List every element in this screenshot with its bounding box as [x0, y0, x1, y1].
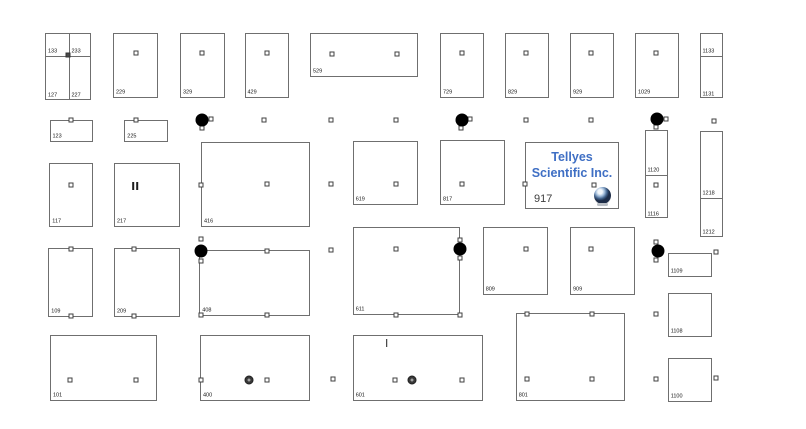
booth-number: 209	[117, 309, 126, 315]
booth-611[interactable]: 611	[353, 227, 461, 315]
utility-outlet-marker	[264, 312, 269, 317]
utility-outlet-marker	[208, 117, 213, 122]
utility-outlet-marker	[68, 378, 73, 383]
utility-outlet-marker	[394, 52, 399, 57]
booth-109[interactable]: 109	[48, 248, 93, 316]
exhibitor-globe-logo-icon	[594, 187, 611, 204]
booth-number: 1133	[703, 49, 715, 55]
structural-column-marker	[454, 243, 467, 256]
wall-tick-mark	[136, 182, 138, 190]
booth-number: 729	[443, 91, 452, 97]
booth-number: 619	[356, 198, 365, 204]
booth-number: 117	[52, 220, 61, 226]
utility-outlet-marker	[394, 312, 399, 317]
utility-outlet-marker	[199, 237, 204, 242]
booth-number: 1116	[648, 212, 659, 218]
booth-number: 217	[117, 220, 126, 226]
utility-outlet-marker	[264, 248, 269, 253]
utility-outlet-marker	[199, 378, 204, 383]
booth-divider	[646, 175, 667, 176]
booth-1100[interactable]: 1100	[668, 358, 712, 401]
booth-1109[interactable]: 1109	[668, 253, 712, 276]
booth-209[interactable]: 209	[114, 248, 180, 316]
utility-outlet-marker	[133, 378, 138, 383]
wall-tick-mark	[386, 339, 388, 347]
booth-225[interactable]: 225	[124, 120, 168, 142]
utility-outlet-marker	[459, 126, 464, 131]
utility-outlet-marker	[654, 377, 659, 382]
utility-outlet-marker	[394, 182, 399, 187]
utility-outlet-marker	[712, 118, 717, 123]
structural-column-marker	[196, 114, 209, 127]
utility-outlet-marker	[69, 183, 74, 188]
structural-column-marker	[195, 244, 208, 257]
utility-outlet-marker	[524, 377, 529, 382]
booth-1108[interactable]: 1108	[668, 293, 712, 337]
booth-408[interactable]: 408	[199, 250, 310, 316]
utility-outlet-marker	[134, 117, 139, 122]
booth-101[interactable]: 101	[50, 335, 157, 401]
utility-outlet-marker	[524, 312, 529, 317]
utility-outlet-marker	[588, 247, 593, 252]
booth-1218-1212[interactable]: 12181212	[700, 131, 723, 237]
booth-number: 1100	[671, 394, 683, 400]
booth-number: 233	[72, 50, 81, 56]
utility-outlet-marker	[654, 183, 659, 188]
utility-outlet-marker	[264, 182, 269, 187]
booth-divider	[701, 56, 722, 57]
utility-outlet-marker	[460, 182, 465, 187]
utility-outlet-marker	[330, 377, 335, 382]
utility-outlet-marker	[329, 118, 334, 123]
booth-416[interactable]: 416	[201, 142, 310, 227]
utility-outlet-marker	[393, 378, 398, 383]
booth-number: 1218	[703, 191, 715, 197]
booth-number: 909	[573, 287, 582, 293]
booth-number: 1108	[671, 329, 683, 335]
booth-817[interactable]: 817	[440, 140, 505, 205]
booth-number: 601	[356, 393, 365, 399]
utility-outlet-marker	[264, 51, 269, 56]
booth-number: 1212	[703, 231, 715, 237]
booth-619[interactable]: 619	[353, 141, 419, 205]
structural-column-marker	[650, 113, 663, 126]
booth-909[interactable]: 909	[570, 227, 635, 295]
booth-divider	[701, 198, 722, 199]
booth-number: 416	[204, 219, 213, 225]
booth-number: 1131	[703, 92, 715, 98]
utility-outlet-marker	[264, 378, 269, 383]
booth-number: 529	[313, 70, 322, 76]
booth-number: 133	[48, 50, 57, 56]
booth-601[interactable]: 601	[353, 335, 483, 401]
booth-133-233-127-227[interactable]: 133233127227	[45, 33, 91, 100]
utility-outlet-marker	[654, 258, 659, 263]
booth-400[interactable]: 400	[200, 335, 310, 401]
floor-port-icon	[408, 376, 417, 385]
utility-outlet-marker	[714, 376, 719, 381]
booth-917[interactable]: TellyesScientific Inc.917	[525, 142, 619, 209]
exhibitor-name-line1: Tellyes	[526, 149, 618, 165]
utility-outlet-marker	[459, 51, 464, 56]
utility-outlet-marker	[132, 246, 137, 251]
utility-outlet-marker	[69, 246, 74, 251]
booth-801[interactable]: 801	[516, 313, 625, 400]
utility-outlet-marker	[199, 183, 204, 188]
utility-outlet-marker	[589, 118, 594, 123]
booth-number: 225	[127, 134, 136, 140]
booth-number: 408	[202, 309, 211, 315]
utility-outlet-marker	[714, 249, 719, 254]
exhibitor-name: TellyesScientific Inc.	[526, 149, 618, 182]
booth-1133-1131[interactable]: 11331131	[700, 33, 723, 98]
booth-number: 123	[53, 134, 62, 140]
booth-number: 429	[248, 91, 257, 97]
utility-outlet-marker	[468, 117, 473, 122]
booth-809[interactable]: 809	[483, 227, 549, 295]
utility-outlet-marker	[329, 182, 334, 187]
utility-outlet-marker	[589, 51, 594, 56]
booth-number: 829	[508, 91, 517, 97]
utility-outlet-marker	[524, 118, 529, 123]
utility-outlet-marker	[134, 51, 139, 56]
booth-429[interactable]: 429	[245, 33, 289, 98]
booth-number: 611	[356, 307, 365, 313]
exhibit-floor-plan: 1332331272272293294295297298299291029113…	[0, 0, 806, 429]
booth-number: 1029	[638, 91, 650, 97]
structural-column-marker	[455, 113, 468, 126]
utility-outlet-marker	[262, 118, 267, 123]
exhibitor-name-line2: Scientific Inc.	[526, 165, 618, 181]
booth-529[interactable]: 529	[310, 33, 418, 77]
booth-number: 1109	[671, 269, 683, 275]
booth-1120-1116[interactable]: 11201116	[645, 130, 668, 218]
booth-1029[interactable]: 1029	[635, 33, 679, 98]
utility-outlet-marker	[654, 312, 659, 317]
booth-117[interactable]: 117	[49, 163, 92, 227]
booth-number: 127	[48, 94, 57, 100]
booth-number: 817	[443, 198, 452, 204]
booth-829[interactable]: 829	[505, 33, 549, 98]
booth-number: 400	[203, 393, 212, 399]
utility-outlet-marker	[132, 314, 137, 319]
booth-number: 929	[573, 91, 582, 97]
utility-outlet-marker	[524, 247, 529, 252]
utility-outlet-marker	[329, 248, 334, 253]
booth-123[interactable]: 123	[50, 120, 93, 142]
utility-outlet-marker	[200, 51, 205, 56]
utility-outlet-marker	[199, 259, 204, 264]
booth-number: 1120	[648, 169, 660, 175]
booth-729[interactable]: 729	[440, 33, 484, 98]
utility-outlet-marker	[663, 117, 668, 122]
wall-tick-mark	[132, 182, 134, 190]
utility-outlet-marker	[458, 256, 463, 261]
utility-outlet-marker	[394, 118, 399, 123]
structural-column-marker	[651, 244, 664, 257]
floor-port-icon	[245, 376, 254, 385]
utility-outlet-marker	[523, 181, 528, 186]
booth-217[interactable]: 217	[114, 163, 180, 227]
utility-outlet-marker	[458, 312, 463, 317]
booth-number: 101	[53, 393, 62, 399]
booth-number: 227	[72, 94, 81, 100]
utility-outlet-marker	[653, 51, 658, 56]
utility-outlet-marker	[589, 377, 594, 382]
booth-329[interactable]: 329	[180, 33, 225, 98]
utility-outlet-marker	[459, 378, 464, 383]
utility-outlet-marker	[394, 247, 399, 252]
booth-number: 329	[183, 91, 192, 97]
utility-outlet-marker	[329, 52, 334, 57]
booth-number: 229	[116, 91, 125, 97]
utility-outlet-marker	[592, 183, 597, 188]
booth-number: 917	[534, 193, 552, 205]
booth-929[interactable]: 929	[570, 33, 614, 98]
filled-outlet-marker	[66, 52, 71, 57]
booth-229[interactable]: 229	[113, 33, 158, 98]
utility-outlet-marker	[69, 314, 74, 319]
utility-outlet-marker	[199, 126, 204, 131]
booth-divider	[69, 34, 70, 99]
booth-number: 801	[519, 393, 528, 399]
utility-outlet-marker	[68, 117, 73, 122]
booth-number: 809	[486, 287, 495, 293]
booth-number: 109	[51, 309, 60, 315]
utility-outlet-marker	[524, 51, 529, 56]
utility-outlet-marker	[589, 312, 594, 317]
utility-outlet-marker	[199, 312, 204, 317]
